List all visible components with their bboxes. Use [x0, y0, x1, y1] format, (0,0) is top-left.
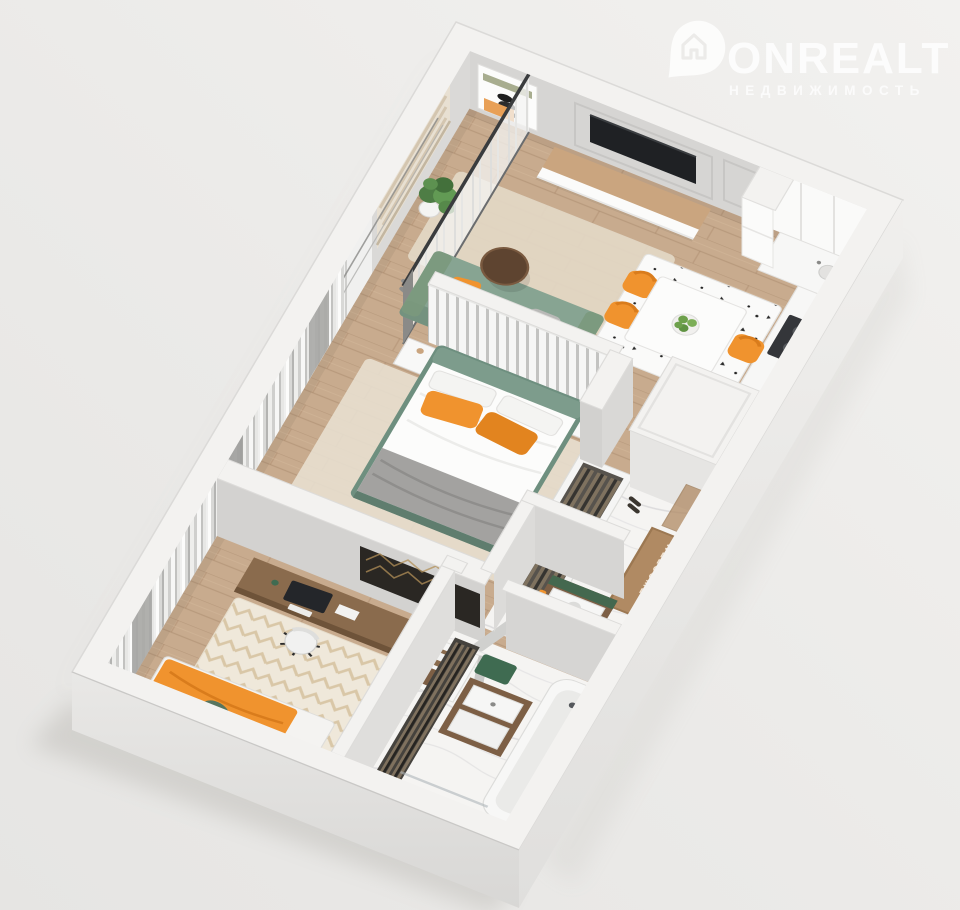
brand-name: ONREALT: [727, 34, 950, 83]
brand-tagline: НЕДВИЖИМОСТЬ: [729, 83, 926, 98]
floor-plan-render: ONREALT НЕДВИЖИМОСТЬ: [0, 0, 960, 910]
floor-plan-svg: ONREALT НЕДВИЖИМОСТЬ: [0, 0, 960, 910]
